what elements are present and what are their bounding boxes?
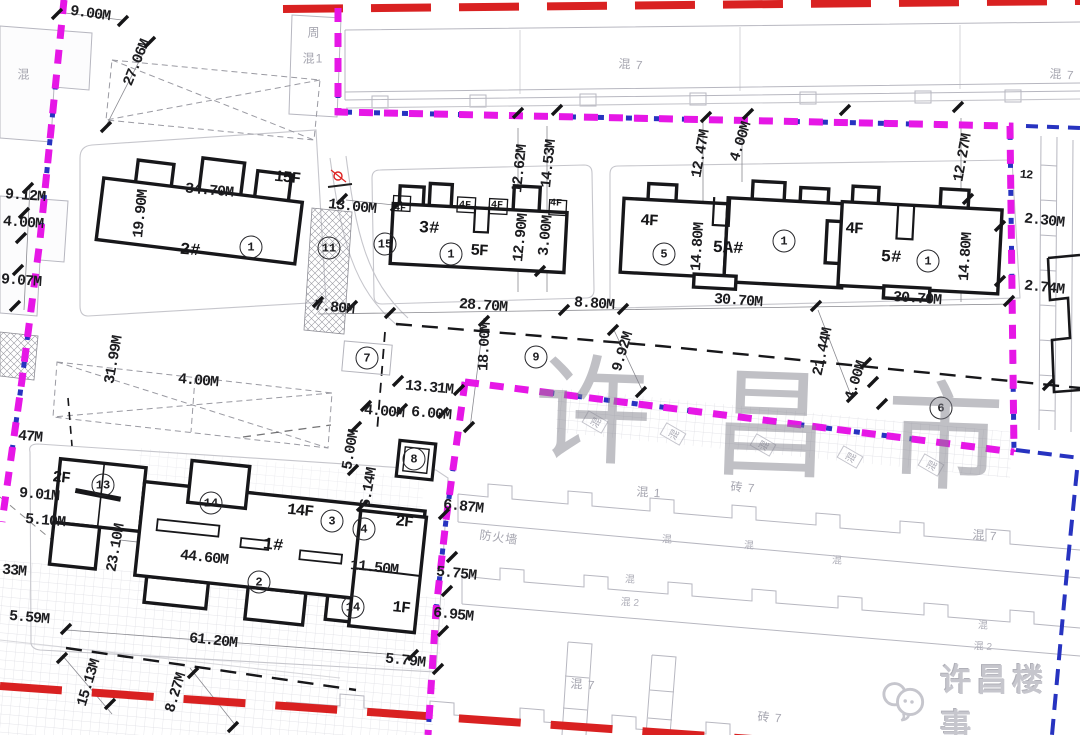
plan-label: 3#: [418, 219, 439, 239]
plan-label: 4.00M: [842, 359, 871, 402]
plan-label: 13.31M: [404, 377, 453, 398]
plan-label: 19.90M: [130, 189, 152, 239]
plan-label: 4F: [550, 198, 563, 210]
plan-label: 混 7: [618, 55, 644, 74]
plan-label: 5.59M: [8, 608, 49, 628]
plan-label: 混: [660, 422, 687, 446]
plan-label: 9.00M: [69, 3, 111, 25]
plan-label: 5.10M: [24, 511, 65, 531]
plan-label: 6.95M: [432, 604, 474, 625]
plan-label: 5A#: [712, 239, 744, 260]
plan-label: 4F: [491, 200, 504, 212]
plan-label: 34.70M: [184, 180, 233, 201]
plan-label: 6.14M: [357, 467, 381, 509]
plan-label: 混1: [303, 50, 324, 67]
plan-label: 4F: [459, 200, 472, 212]
plan-label: 5.00M: [339, 429, 363, 471]
plan-label: 7.80M: [313, 297, 355, 318]
plan-label: 14.80M: [956, 232, 976, 281]
plan-label: 11.50M: [349, 557, 399, 579]
plan-label: 3.00M: [535, 215, 556, 257]
plan-label: 混 7: [972, 526, 998, 545]
plan-label: 9.07M: [0, 271, 41, 291]
plan-label: 23.10M: [103, 523, 128, 573]
watermark-char: 昌: [709, 327, 833, 502]
chat-bubbles-icon: [880, 678, 930, 722]
plan-label: 15F: [273, 168, 301, 189]
plan-label: 14.80M: [688, 222, 708, 271]
circled-marker: 4: [353, 518, 376, 541]
plan-label: 周: [307, 24, 320, 41]
watermark-char: 市: [883, 340, 1007, 515]
plan-label: 混: [661, 530, 672, 546]
plan-labels: 9.00M27.06M9.12M4.00M9.07M19.90M34.70M15…: [0, 0, 1080, 735]
plan-label: 12.47M: [688, 129, 713, 179]
plan-label: 混 2: [620, 593, 639, 609]
plan-label: 5.75M: [435, 563, 477, 584]
plan-label: 2#: [179, 241, 201, 262]
plan-label: 2F: [52, 468, 71, 488]
plan-label: 47M: [17, 427, 42, 446]
plan-label: 13.00M: [327, 196, 377, 218]
circled-marker: 8: [403, 448, 426, 471]
plan-label: 30.70M: [713, 291, 762, 311]
plan-label: 4.00M: [727, 120, 756, 163]
plan-label: 混: [743, 536, 754, 552]
circled-marker: 5: [653, 243, 676, 266]
plan-label: 4.00M: [177, 371, 218, 391]
plan-label: 2F: [395, 512, 414, 532]
circled-marker: 1: [917, 250, 940, 273]
plan-label: 6.87M: [442, 496, 484, 517]
plan-label: 8.27M: [162, 671, 190, 714]
plan-label: 混: [837, 445, 864, 469]
plan-label: 14F: [286, 501, 314, 522]
watermark-char: 许: [531, 314, 655, 489]
plan-label: 30.70M: [892, 289, 941, 309]
plan-label: 27.06M: [120, 38, 154, 89]
plan-label: 15.13M: [74, 658, 104, 709]
plan-label: 防火墙: [478, 526, 519, 548]
plan-label: 4F: [640, 212, 658, 231]
plan-label: 1F: [392, 598, 411, 618]
circled-marker: 13: [92, 474, 115, 497]
plan-label: 混: [624, 570, 635, 586]
plan-label: 混 7: [570, 675, 596, 694]
plan-label: 混: [17, 66, 30, 83]
circled-marker: 1: [773, 230, 796, 253]
logo-text: 许昌楼事: [940, 655, 1080, 735]
plan-label: 6.00M: [410, 404, 451, 424]
circled-marker: 15: [374, 233, 397, 256]
plan-label: 4F: [394, 203, 407, 215]
circled-marker: 14: [342, 596, 365, 619]
plan-label: 31.99M: [101, 335, 126, 385]
plan-label: 28.70M: [458, 296, 507, 316]
circled-marker: 1: [240, 236, 263, 259]
plan-label: 2.30M: [1023, 210, 1065, 231]
plan-label: 12: [1019, 167, 1033, 182]
plan-label: 5F: [470, 242, 488, 261]
plan-label: 1#: [262, 535, 284, 556]
plan-label: 12.27M: [950, 133, 975, 183]
circled-marker: 1: [440, 243, 463, 266]
plan-label: 混 2: [973, 637, 992, 653]
plan-label: 4.00M: [363, 402, 404, 422]
circled-marker: 3: [321, 510, 344, 533]
plan-label: 9.12M: [4, 186, 45, 206]
plan-label: 砖 7: [757, 708, 783, 727]
plan-label: 9.01M: [18, 485, 59, 505]
plan-label: 混 7: [1049, 65, 1075, 84]
circled-marker: 14: [200, 492, 223, 515]
plan-label: 12.90M: [510, 213, 532, 263]
plan-label: 混: [977, 616, 988, 632]
circled-marker: 2: [248, 571, 271, 594]
circled-marker: 11: [318, 237, 341, 260]
plan-label: 33M: [1, 561, 26, 580]
plan-label: 18.00M: [475, 323, 494, 372]
plan-label: 12.62M: [509, 144, 531, 194]
plan-label: 61.20M: [188, 630, 238, 652]
plan-label: 4F: [845, 220, 863, 239]
plan-label: 5#: [880, 248, 901, 268]
plan-label: 14.53M: [538, 139, 560, 189]
plan-label: 2.74M: [1023, 277, 1065, 298]
plan-label: 混: [831, 551, 842, 567]
plan-label: 5.79M: [384, 650, 426, 671]
site-plan-screenshot: 9.00M27.06M9.12M4.00M9.07M19.90M34.70M15…: [0, 0, 1080, 735]
plan-label: 4.00M: [2, 213, 43, 233]
plan-label: 8.80M: [573, 294, 614, 314]
circled-marker: 7: [356, 347, 379, 370]
publisher-logo: 许昌楼事: [880, 655, 1080, 735]
plan-label: 44.60M: [179, 547, 229, 569]
